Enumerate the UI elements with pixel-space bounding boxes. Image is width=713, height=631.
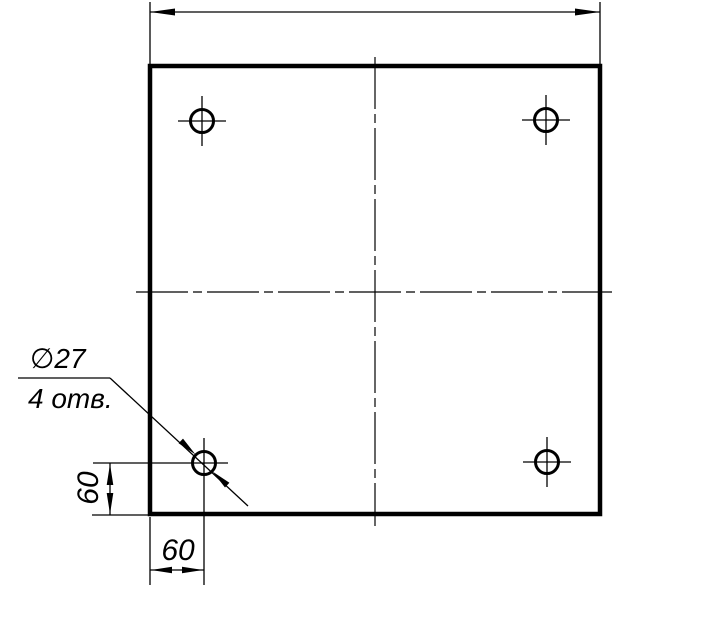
leader-diagonal-line	[110, 378, 248, 506]
arrowhead-up-icon	[107, 464, 114, 485]
arrowhead-right-icon	[575, 9, 600, 16]
hole-top-left	[178, 96, 226, 146]
leader-arrowhead-icon	[179, 439, 196, 455]
bottom-offset-dimension: 60	[150, 517, 204, 585]
hole-count-label: 4 отв.	[28, 383, 113, 414]
hole-diameter-label: ∅27	[30, 343, 87, 374]
plate-center-lines	[136, 57, 612, 526]
top-dimension	[150, 2, 600, 64]
hole-diameter-leader: ∅27 4 отв.	[18, 343, 248, 506]
hole-top-right	[522, 95, 570, 145]
hole-bottom-right	[523, 437, 571, 487]
drawing-canvas: 60 60 ∅27 4 отв.	[0, 0, 713, 631]
arrowhead-left-icon	[150, 9, 175, 16]
leader-arrowhead-icon	[213, 472, 230, 488]
bottom-offset-dim-label: 60	[161, 534, 195, 567]
arrowhead-right-icon	[182, 567, 203, 574]
arrowhead-down-icon	[107, 493, 114, 514]
left-offset-dimension: 60	[72, 463, 152, 515]
technical-drawing: 60 60 ∅27 4 отв.	[0, 0, 713, 631]
left-offset-dim-label: 60	[72, 471, 105, 505]
arrowhead-left-icon	[151, 567, 172, 574]
